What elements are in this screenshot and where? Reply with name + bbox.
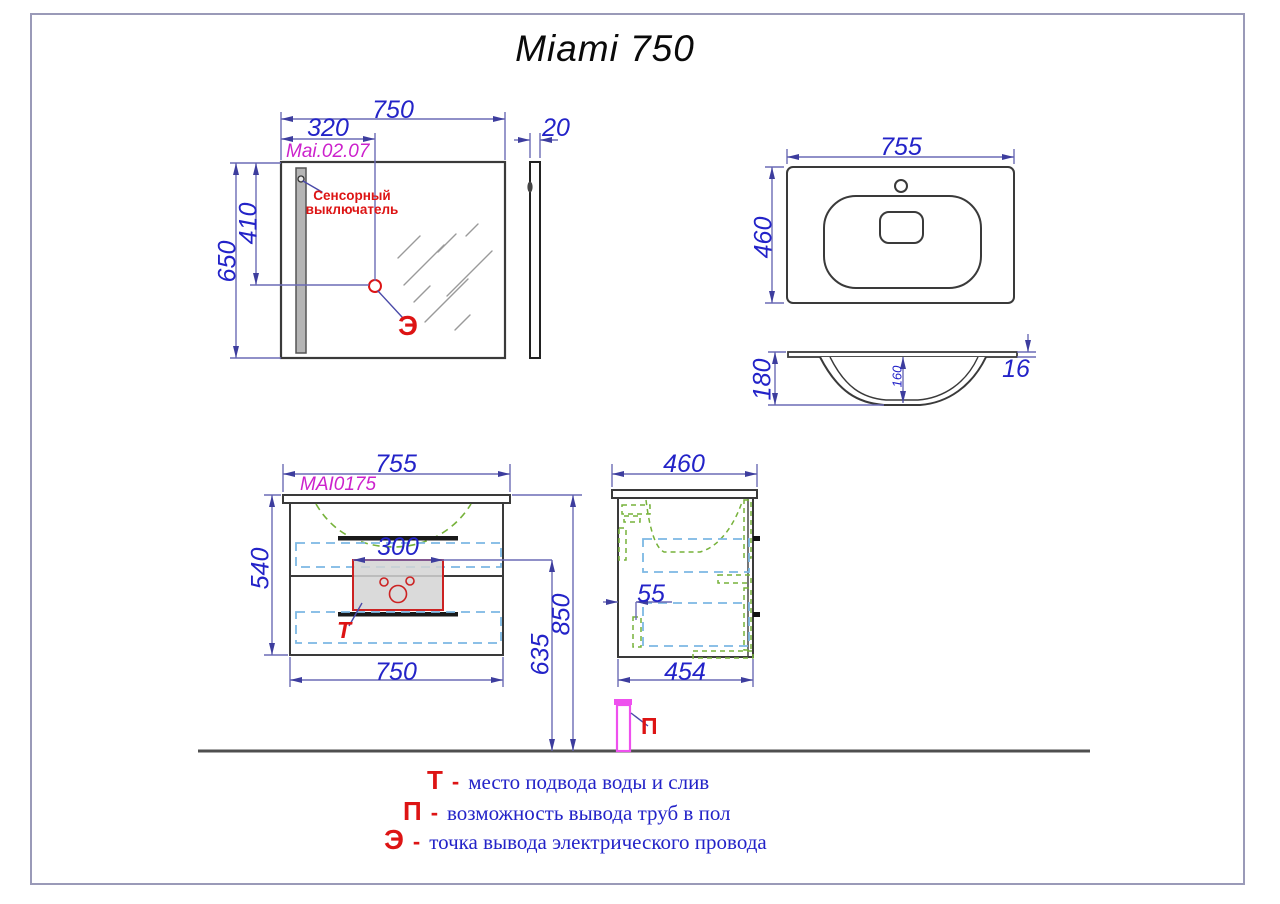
legend-row-water: Т - место подвода воды и слив	[427, 765, 709, 796]
legend-text-p: возможность вывода труб в пол	[447, 801, 731, 826]
water-marker: Т	[337, 617, 351, 644]
dim-sink-width: 755	[861, 133, 941, 162]
dim-cabinet-depth-bottom: 454	[645, 658, 725, 687]
legend-row-pipe: П - возможность вывода труб в пол	[403, 796, 731, 827]
dim-sink-height: 180	[749, 340, 778, 420]
touch-switch-note-line1: Сенсорный	[313, 188, 390, 203]
mirror-article-code: Mai.02.07	[286, 141, 369, 163]
dim-mirror-switch-y: 410	[235, 184, 264, 264]
floor-pipe-marker: П	[641, 713, 658, 740]
legend-text-t: место подвода воды и слив	[468, 770, 709, 795]
legend-marker-e: Э	[384, 824, 404, 856]
dim-pipe-offset: 55	[611, 580, 691, 609]
legend-dash-t: -	[452, 769, 459, 795]
dim-mirror-thickness: 20	[526, 114, 586, 143]
dim-plumbing-cutout: 300	[358, 533, 438, 562]
legend-text-e: точка вывода электрического провода	[429, 830, 766, 855]
countertop-side	[612, 490, 757, 498]
dim-cabinet-depth-top: 460	[644, 450, 724, 479]
dim-sink-rim: 16	[986, 355, 1046, 384]
side-handle-top	[753, 536, 760, 541]
dim-drain-height: 635	[527, 615, 556, 695]
dim-mirror-switch-x: 320	[288, 114, 368, 143]
mirror-side-view	[527, 162, 540, 358]
touch-switch-note: Сенсорный выключатель	[300, 189, 404, 217]
faucet-hole	[895, 180, 907, 192]
legend-dash-e: -	[413, 829, 420, 855]
dim-cabinet-width-top: 755	[356, 450, 436, 479]
sink-top-view	[787, 167, 1014, 303]
electric-marker: Э	[398, 310, 418, 342]
legend-row-electric: Э - точка вывода электрического провода	[384, 824, 767, 856]
side-handle-bottom	[753, 612, 760, 617]
drawing-sheet: Miami 750 750 320 Mai.02.07 650 410 Сенс…	[0, 0, 1280, 904]
legend-marker-p: П	[403, 796, 422, 827]
dim-cabinet-height: 540	[247, 529, 276, 609]
legend-dash-p: -	[431, 800, 438, 826]
countertop-front	[283, 495, 510, 503]
pipe-body	[617, 705, 630, 751]
overflow-recess	[880, 212, 923, 243]
cabinet-front-view	[283, 495, 510, 655]
dim-cabinet-width-bottom: 750	[356, 658, 436, 687]
dim-sink-depth: 460	[750, 198, 779, 278]
dim-bowl-depth: 160	[890, 337, 905, 417]
touch-switch-note-line2: выключатель	[306, 202, 399, 217]
page-title: Miami 750	[440, 28, 770, 70]
cabinet-side-view	[612, 490, 760, 658]
side-switch-bump	[527, 182, 532, 193]
legend-marker-t: Т	[427, 765, 443, 796]
